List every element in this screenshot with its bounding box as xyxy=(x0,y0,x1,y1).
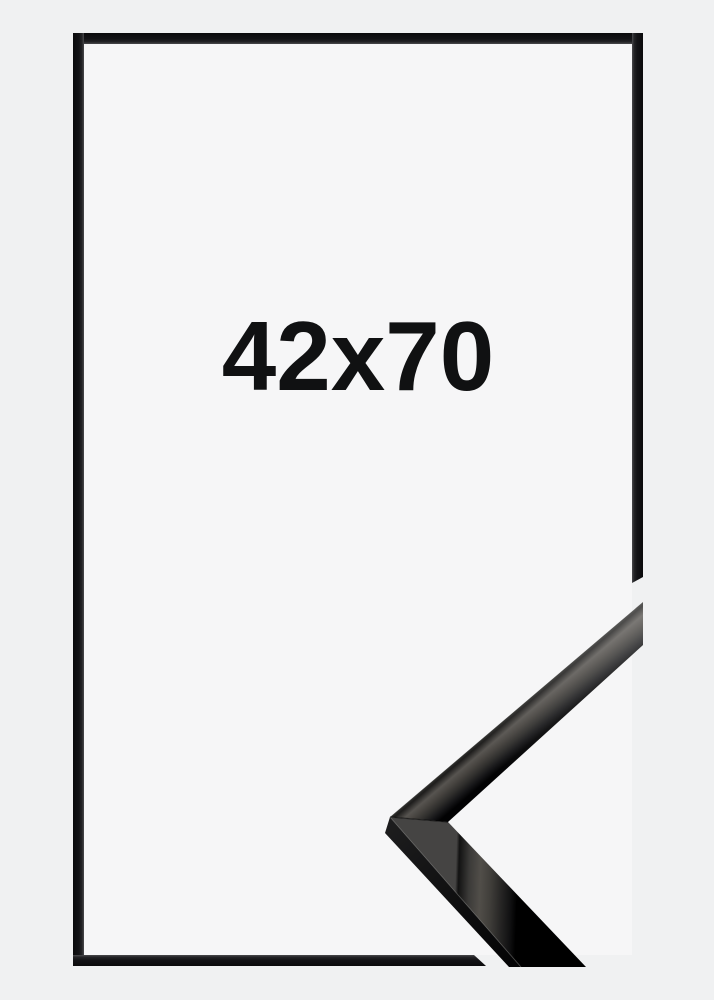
frame-outline-top xyxy=(73,33,643,44)
frame-opening xyxy=(84,44,632,955)
frame-outline-bottom xyxy=(73,955,486,966)
frame-outline-left xyxy=(73,33,84,966)
size-label: 42x70 xyxy=(73,307,643,405)
frame-product-image: 42x70 xyxy=(0,0,714,1000)
